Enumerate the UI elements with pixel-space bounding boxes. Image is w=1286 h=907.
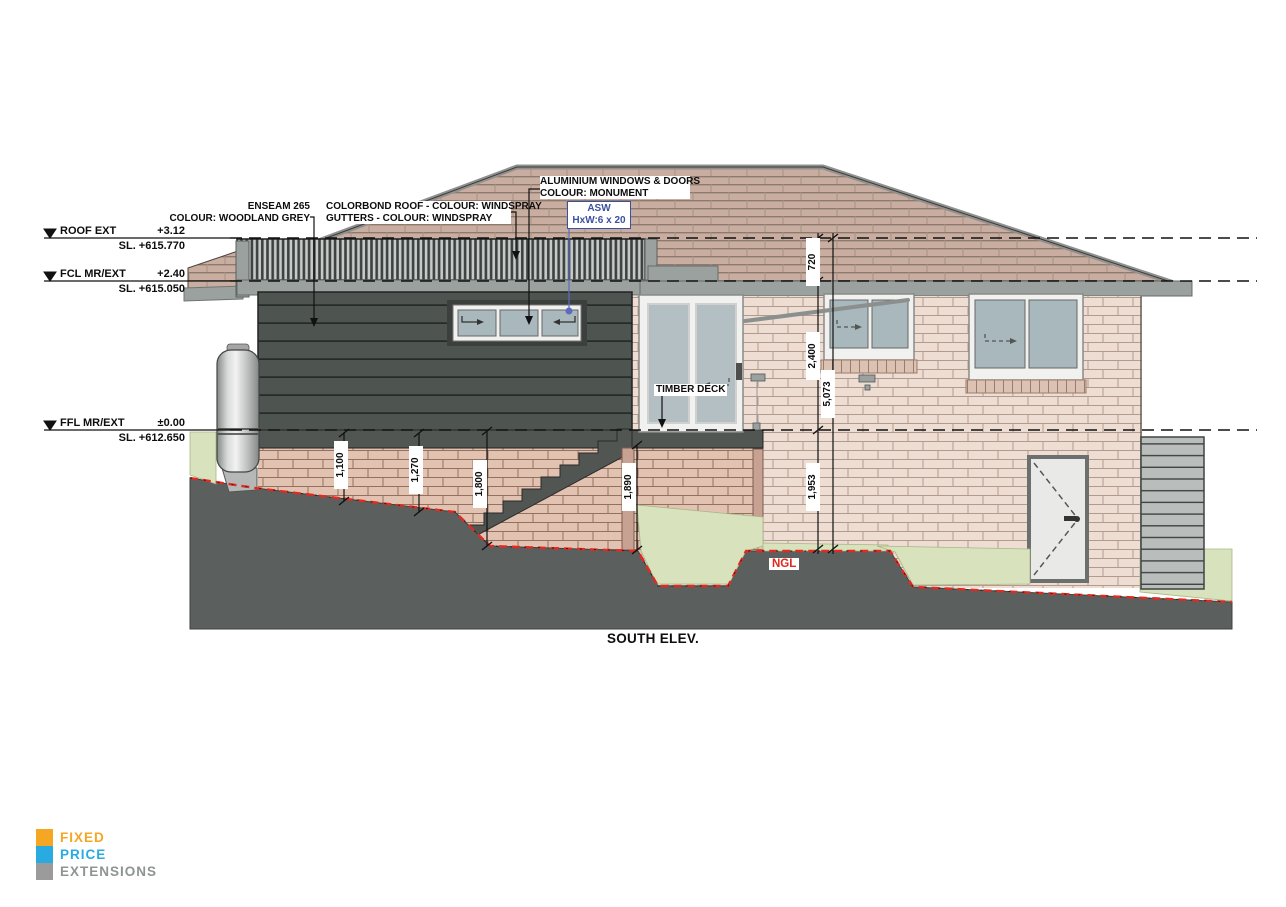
- annotation-enseam-line2: COLOUR: WOODLAND GREY: [148, 213, 310, 225]
- annotation-timber-deck: TIMBER DECK: [654, 384, 727, 396]
- left-gutter: [184, 286, 243, 301]
- dim-roof-to-fcl: 720: [806, 238, 820, 286]
- elevation-sheet: ROOF EXT +3.12 SL. +615.770 FCL MR/EXT +…: [0, 0, 1286, 907]
- logo-square-orange: [36, 829, 53, 846]
- level-value-roof: +3.12: [118, 225, 185, 237]
- asw-leader-dot: [566, 308, 573, 315]
- rear-door: [1029, 457, 1087, 581]
- dim-stair-4: 1,890: [622, 463, 636, 511]
- dim-fcl-to-ffl: 2,400: [806, 332, 820, 380]
- eave-fascia: [640, 281, 1192, 296]
- door-handle: [736, 363, 742, 380]
- logo-text-fixed: FIXED: [60, 829, 105, 846]
- window-2: [966, 294, 1086, 393]
- dim-stair-2: 1,270: [409, 446, 423, 494]
- dim-total-height: 5,073: [821, 370, 835, 418]
- level-value-ffl: ±0.00: [118, 417, 185, 429]
- annotation-aluminium-line2: COLOUR: MONUMENT: [540, 188, 690, 200]
- dim-stair-3: 1,800: [473, 460, 487, 508]
- side-slats: [1141, 437, 1204, 589]
- annotation-colorbond: COLORBOND ROOF - COLOUR: WINDSPRAY GUTTE…: [326, 201, 511, 224]
- annotation-enseam-line1: ENSEAM 265: [148, 201, 310, 213]
- annotation-enseam: ENSEAM 265 COLOUR: WOODLAND GREY: [148, 201, 310, 224]
- level-sl-roof: SL. +615.770: [95, 240, 185, 252]
- logo-text-price: PRICE: [60, 846, 106, 863]
- annotation-colorbond-line1: COLORBOND ROOF - COLOUR: WINDSPRAY: [326, 201, 511, 213]
- level-value-fcl: +2.40: [118, 268, 185, 280]
- water-tank: [217, 344, 259, 492]
- parapet-enseam-cladding: [236, 239, 657, 297]
- annotation-asw: ASW HxW:6 x 20: [567, 201, 631, 229]
- window-sill: [821, 360, 917, 373]
- dim-ffl-to-ngl: 1,953: [806, 463, 820, 511]
- annotation-ngl: NGL: [769, 558, 799, 570]
- left-roof: [184, 251, 243, 301]
- annotation-asw-line1: ASW: [568, 203, 630, 215]
- level-sl-ffl: SL. +612.650: [95, 432, 185, 444]
- level-marker-roof: [44, 229, 56, 238]
- annotation-aluminium: ALUMINIUM WINDOWS & DOORS COLOUR: MONUME…: [540, 176, 690, 199]
- elevation-drawing: [0, 0, 1286, 907]
- annotation-aluminium-line1: ALUMINIUM WINDOWS & DOORS: [540, 176, 690, 188]
- logo-square-blue: [36, 846, 53, 863]
- dim-stair-1: 1,100: [334, 441, 348, 489]
- level-marker-ffl: [44, 421, 56, 430]
- window-sill: [966, 380, 1086, 393]
- level-sl-fcl: SL. +615.050: [95, 283, 185, 295]
- sliding-door: [639, 295, 743, 432]
- logo-text-extensions: EXTENSIONS: [60, 863, 157, 880]
- box-gutter: [648, 266, 718, 281]
- level-marker-fcl: [44, 272, 56, 281]
- extension-window: [447, 300, 587, 346]
- annotation-colorbond-line2: GUTTERS - COLOUR: WINDSPRAY: [326, 213, 511, 225]
- logo-square-grey: [36, 863, 53, 880]
- drawing-title: SOUTH ELEV.: [553, 631, 753, 646]
- annotation-asw-line2: HxW:6 x 20: [568, 215, 630, 227]
